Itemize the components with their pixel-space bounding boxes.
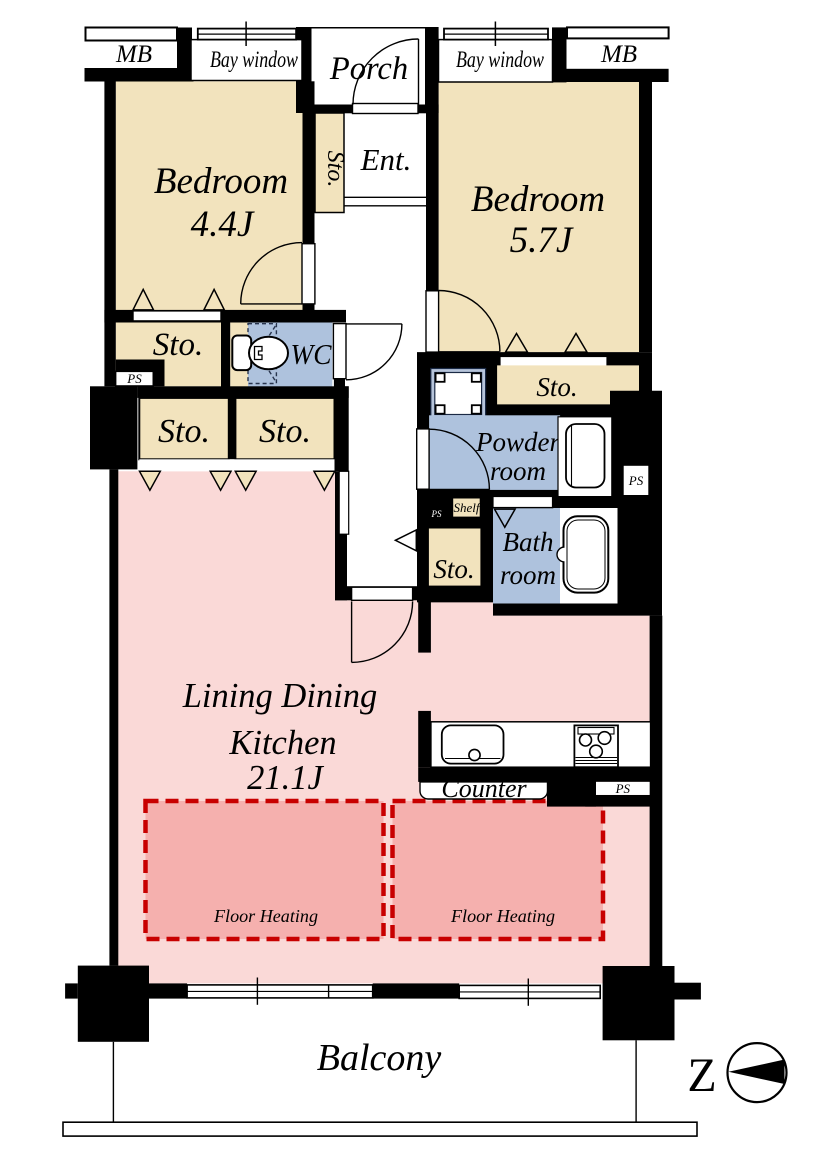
- svg-text:Porch: Porch: [329, 51, 408, 87]
- svg-text:Shelf: Shelf: [454, 500, 482, 515]
- svg-text:Counter: Counter: [441, 774, 527, 803]
- svg-text:5.7J: 5.7J: [510, 220, 574, 261]
- svg-text:MB: MB: [115, 41, 152, 68]
- svg-text:PS: PS: [431, 509, 442, 519]
- svg-text:Bay window: Bay window: [210, 47, 299, 72]
- svg-text:Bath: Bath: [503, 527, 554, 557]
- svg-text:room: room: [500, 560, 556, 590]
- svg-text:PS: PS: [615, 781, 631, 796]
- svg-text:4.4J: 4.4J: [191, 204, 255, 245]
- svg-text:WC: WC: [291, 339, 333, 371]
- svg-text:Z: Z: [687, 1049, 716, 1102]
- svg-text:Sto.: Sto.: [259, 413, 311, 450]
- svg-text:Sto.: Sto.: [322, 151, 348, 188]
- svg-text:Sto.: Sto.: [153, 327, 203, 363]
- svg-text:Kitchen: Kitchen: [228, 724, 336, 762]
- svg-text:PS: PS: [628, 473, 644, 488]
- svg-text:Floor Heating: Floor Heating: [450, 906, 555, 926]
- svg-text:Bay window: Bay window: [456, 47, 545, 72]
- svg-text:Sto.: Sto.: [536, 372, 577, 402]
- svg-text:Sto.: Sto.: [433, 554, 474, 584]
- svg-text:Bedroom: Bedroom: [471, 179, 605, 220]
- svg-text:MB: MB: [600, 41, 637, 68]
- svg-text:Floor Heating: Floor Heating: [213, 906, 318, 926]
- svg-text:Bedroom: Bedroom: [154, 161, 288, 202]
- svg-text:Lining Dining: Lining Dining: [182, 677, 378, 715]
- svg-text:room: room: [490, 456, 546, 486]
- svg-text:Balcony: Balcony: [317, 1037, 442, 1079]
- svg-text:PS: PS: [126, 371, 142, 386]
- svg-text:21.1J: 21.1J: [247, 759, 324, 797]
- svg-text:Powder: Powder: [475, 427, 560, 457]
- svg-text:Ent.: Ent.: [360, 142, 412, 177]
- svg-text:Sto.: Sto.: [158, 413, 210, 450]
